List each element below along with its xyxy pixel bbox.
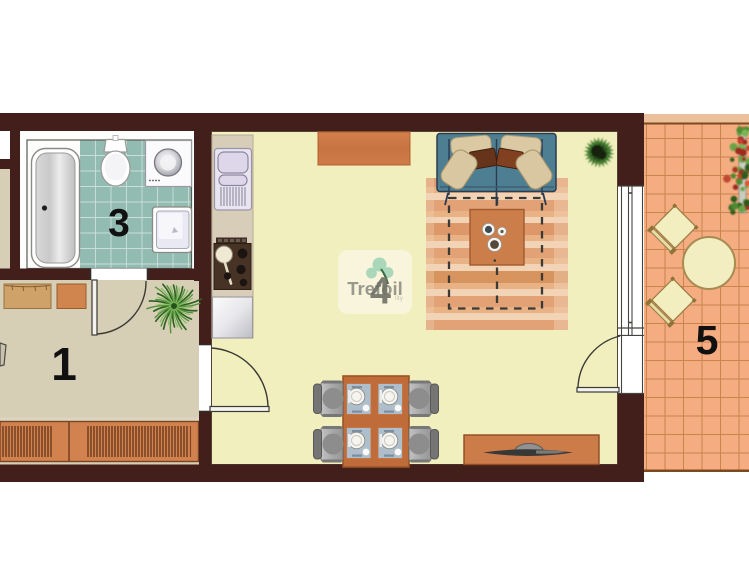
svg-text:3: 3	[108, 202, 130, 245]
svg-text:4: 4	[370, 271, 391, 313]
svg-text:lity: lity	[395, 295, 404, 302]
svg-text:5: 5	[696, 317, 719, 363]
svg-text:1: 1	[51, 338, 77, 390]
